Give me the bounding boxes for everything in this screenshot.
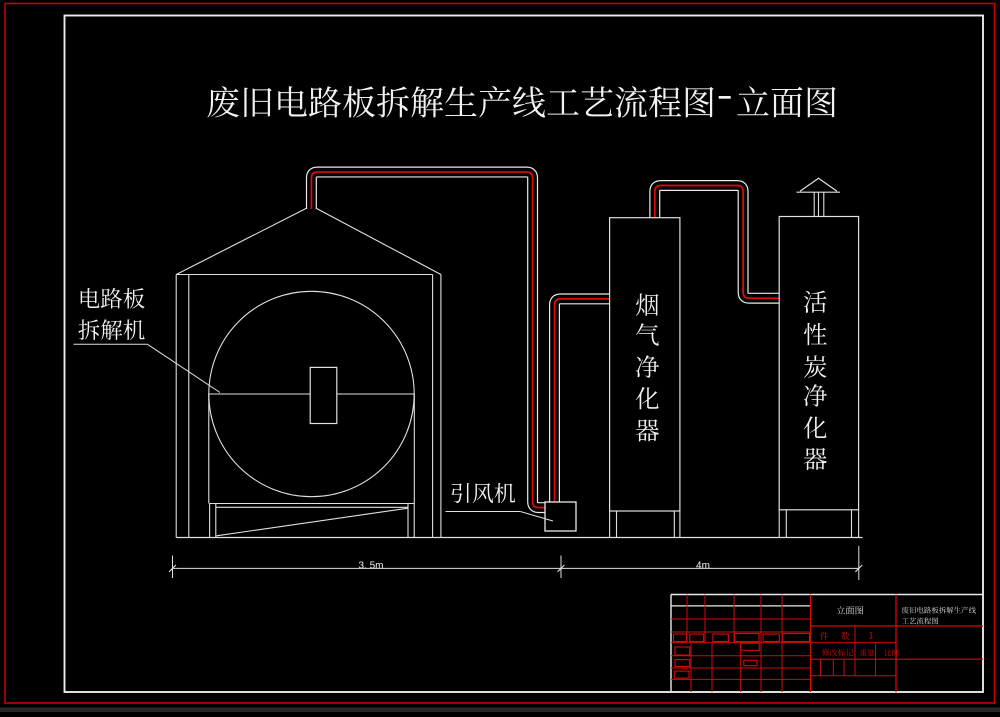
svg-text:1: 1 bbox=[868, 631, 873, 641]
svg-text:3. 5m: 3. 5m bbox=[358, 561, 383, 572]
svg-text:4m: 4m bbox=[696, 561, 710, 572]
